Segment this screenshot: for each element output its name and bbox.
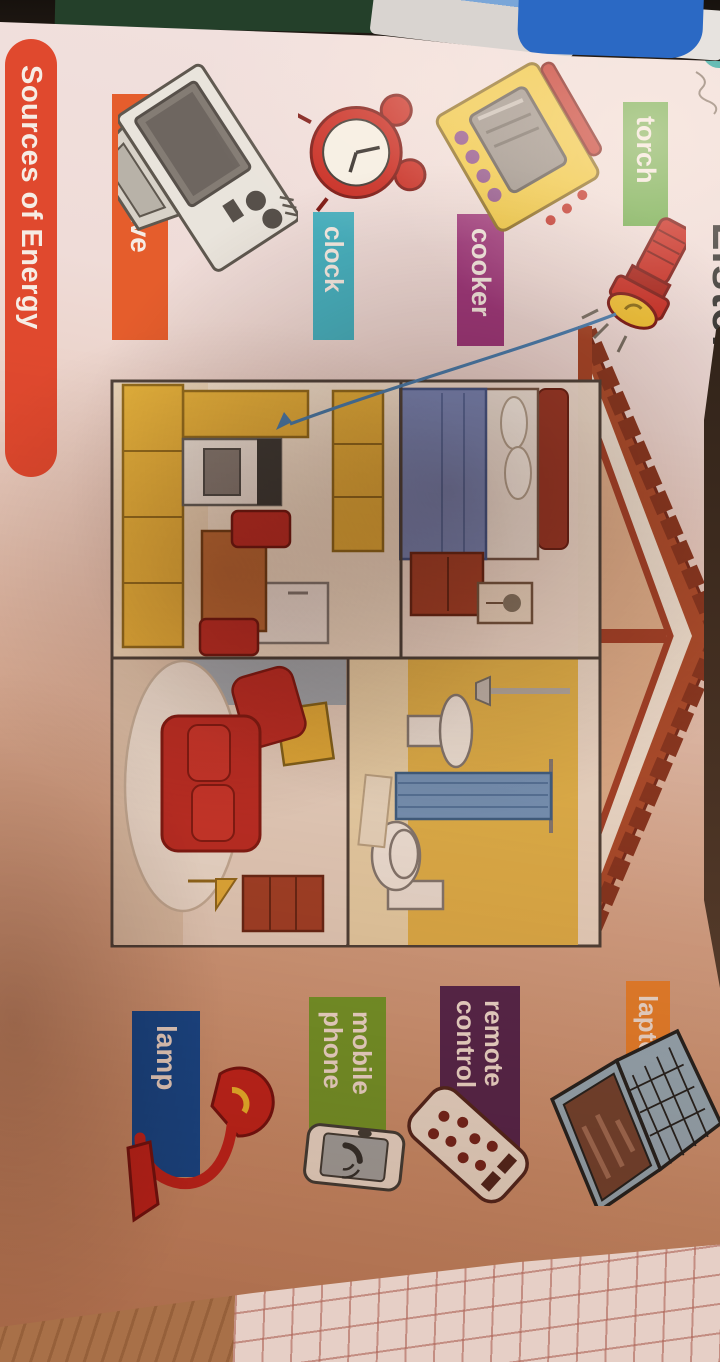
workbook-page: Listen and draw lines. torch cooker cloc… bbox=[0, 0, 720, 1362]
photo-of-workbook-page: Listen and draw lines. torch cooker cloc… bbox=[0, 0, 720, 1362]
drawn-answer-line bbox=[0, 26, 720, 1266]
page-content-rotated: Listen and draw lines. torch cooker cloc… bbox=[0, 26, 720, 1266]
blue-object bbox=[517, 0, 704, 59]
